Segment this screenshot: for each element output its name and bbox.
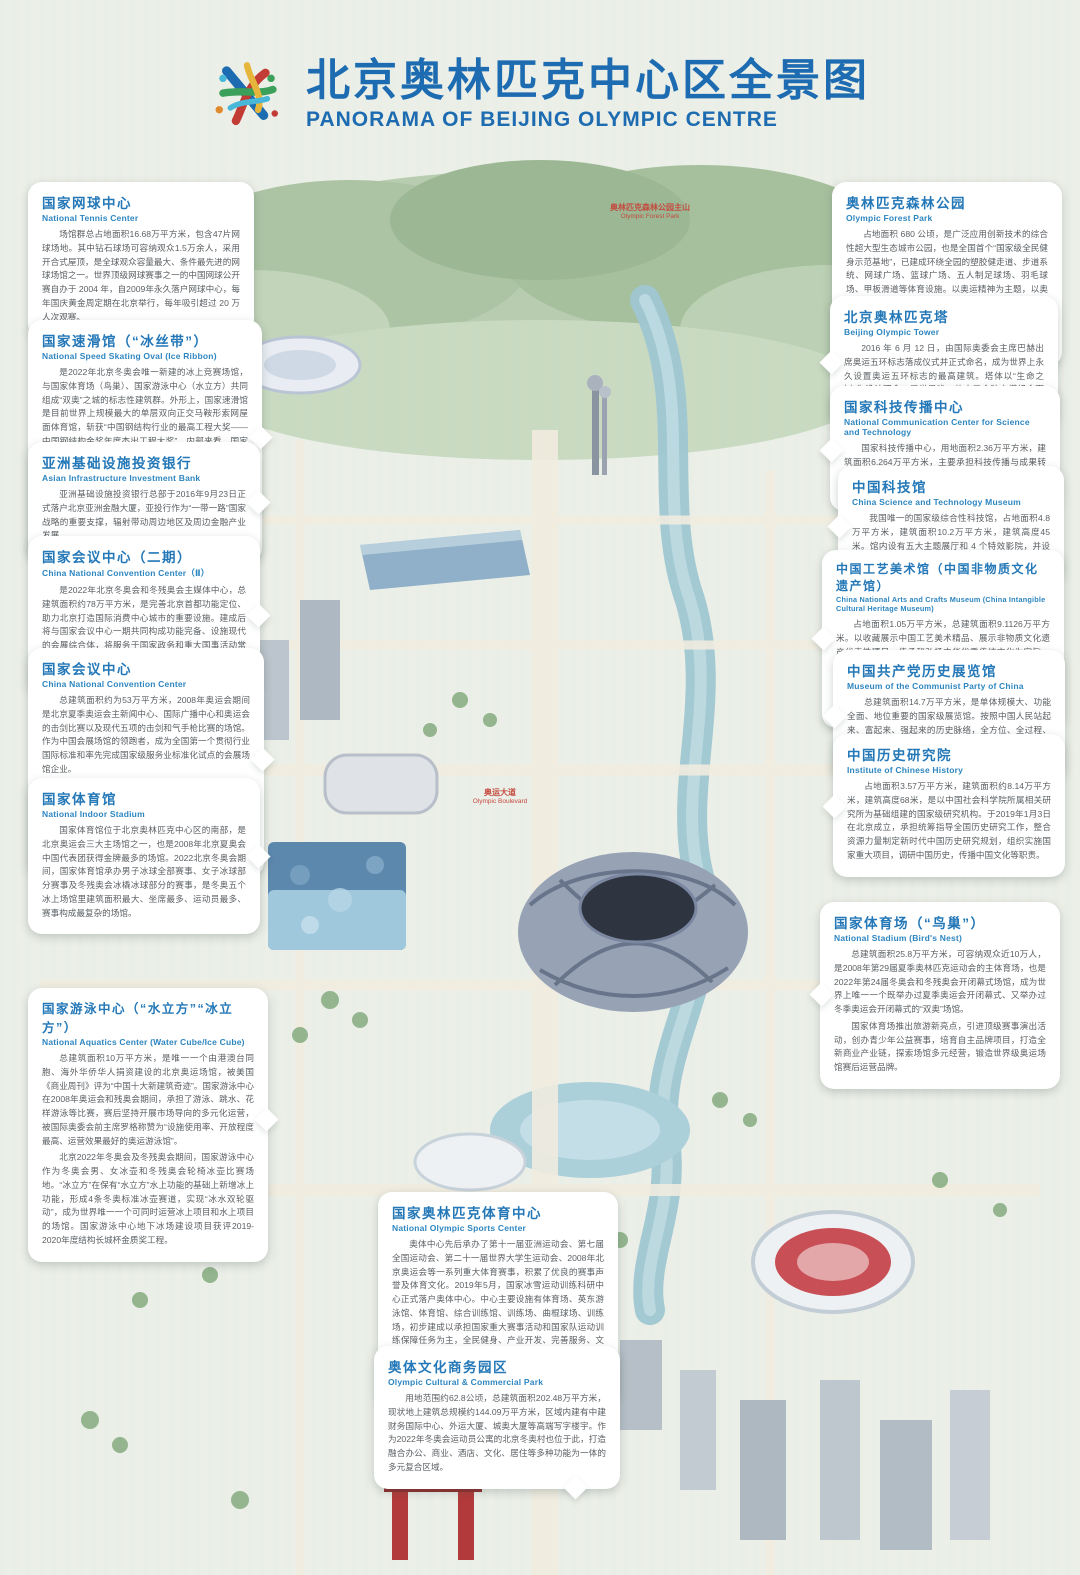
- water-cube-shape: [268, 842, 406, 950]
- callout-title-en: National Speed Skating Oval (Ice Ribbon): [42, 351, 248, 361]
- map-label-zh: 奥运大道: [455, 788, 545, 798]
- callout-title-zh: 国家网球中心: [42, 192, 240, 212]
- callout-title-zh: 奥体文化商务园区: [388, 1356, 606, 1376]
- callout-title-en: China National Convention Center: [42, 679, 250, 689]
- callout-title-en: Olympic Forest Park: [846, 213, 1048, 223]
- callout-title-zh: 国家速滑馆（“冰丝带”）: [42, 330, 248, 350]
- callout-body: 用地范围约62.8公顷，总建筑面积202.48万平方米，现状地上建筑总规模约14…: [388, 1392, 606, 1475]
- indoor-stadium-shape: [325, 755, 437, 813]
- callout-title-en: Institute of Chinese History: [847, 765, 1051, 775]
- callout-title-zh: 中国科技馆: [852, 476, 1050, 496]
- callout-title-en: National Tennis Center: [42, 213, 240, 223]
- callout-olympic-cultural-commercial-park: 奥体文化商务园区 Olympic Cultural & Commercial P…: [374, 1346, 620, 1489]
- callout-title-zh: 亚洲基础设施投资银行: [42, 452, 246, 472]
- callout-title-zh: 北京奥林匹克塔: [844, 306, 1044, 326]
- callout-title-en: China National Convention Center（Ⅱ）: [42, 567, 246, 579]
- callout-title-en: National Stadium (Bird's Nest): [834, 933, 1046, 943]
- callout-body: 北京2022年冬奥会及冬残奥会期间，国家游泳中心作为冬奥会男、女冰壶和冬残奥会轮…: [42, 1151, 254, 1247]
- callout-title-en: National Communication Center for Scienc…: [844, 417, 1046, 437]
- callout-title-en: Museum of the Communist Party of China: [847, 681, 1051, 691]
- callout-body: 总建筑面积10万平方米，是唯一一个由港澳台同胞、海外华侨华人捐资建设的北京奥运场…: [42, 1052, 254, 1148]
- callout-title-zh: 中国工艺美术馆（中国非物质文化遗产馆）: [836, 560, 1050, 594]
- map-label-forest-park: 奥林匹克森林公园主山 Olympic Forest Park: [585, 203, 715, 221]
- callout-national-tennis-center: 国家网球中心 National Tennis Center 场馆群总占地面积16…: [28, 182, 254, 338]
- map-label-olympic-boulevard: 奥运大道 Olympic Boulevard: [455, 788, 545, 806]
- callout-body: 总建筑面积25.8万平方米，可容纳观众近10万人，是2008年第29届夏季奥林匹…: [834, 948, 1046, 1017]
- callout-title-zh: 国家奥林匹克体育中心: [392, 1202, 604, 1222]
- callout-title-en: China National Arts and Crafts Museum (C…: [836, 595, 1050, 613]
- map-label-en: Olympic Forest Park: [585, 213, 715, 221]
- callout-body: 总建筑面积约为53万平方米，2008年奥运会期间是北京夏季奥运会主新闻中心、国际…: [42, 694, 250, 777]
- callout-national-stadium-birds-nest: 国家体育场（“鸟巢”） National Stadium (Bird's Nes…: [820, 902, 1060, 1089]
- callout-title-zh: 国家会议中心: [42, 658, 250, 678]
- map-label-zh: 奥林匹克森林公园主山: [585, 203, 715, 213]
- callout-title-zh: 国家体育馆: [42, 788, 246, 808]
- callout-body: 占地面积3.57万平方米，建筑面积约8.14万平方米，建筑高度68米，是以中国社…: [847, 780, 1051, 863]
- callout-body: 国家体育场推出旅游新亮点，引进顶级赛事演出活动，创办青少年公益赛事，培育自主品牌…: [834, 1020, 1046, 1075]
- page-subtitle: PANORAMA OF BEIJING OLYMPIC CENTRE: [306, 108, 870, 132]
- page-title: 北京奥林匹克中心区全景图: [306, 58, 870, 104]
- callout-body: 国家体育馆位于北京奥林匹克中心区的南部，是北京奥运会三大主场馆之一，也是2008…: [42, 824, 246, 920]
- birds-nest-shape: [518, 852, 748, 1012]
- callout-title-zh: 国家游泳中心（“水立方”“冰立方”）: [42, 998, 254, 1036]
- callout-body: 场馆群总占地面积16.68万平方米，包含47片网球场地。其中钻石球场可容纳观众1…: [42, 228, 240, 324]
- callout-national-indoor-stadium: 国家体育馆 National Indoor Stadium 国家体育馆位于北京奥…: [28, 778, 260, 934]
- olympic-centre-logo-icon: [210, 58, 284, 132]
- callout-title-zh: 中国共产党历史展览馆: [847, 660, 1051, 680]
- callout-title-en: Olympic Cultural & Commercial Park: [388, 1377, 606, 1387]
- dome-venue-shape: [415, 1134, 525, 1190]
- callout-title-zh: 国家会议中心（二期）: [42, 546, 246, 566]
- callout-national-aquatics-center: 国家游泳中心（“水立方”“冰立方”） National Aquatics Cen…: [28, 988, 268, 1262]
- callout-body: 亚洲基础设施投资银行总部于2016年9月23日正式落户北京亚洲金融大厦，亚投行作…: [42, 488, 246, 543]
- callout-title-zh: 中国历史研究院: [847, 744, 1051, 764]
- callout-title-en: National Aquatics Center (Water Cube/Ice…: [42, 1037, 254, 1047]
- callout-title-zh: 国家体育场（“鸟巢”）: [834, 912, 1046, 932]
- callout-title-en: National Indoor Stadium: [42, 809, 246, 819]
- callout-title-zh: 国家科技传播中心: [844, 396, 1046, 416]
- callout-title-zh: 奥林匹克森林公园: [846, 192, 1048, 212]
- callout-title-en: National Olympic Sports Center: [392, 1223, 604, 1233]
- map-label-en: Olympic Boulevard: [455, 798, 545, 806]
- callout-title-en: China Science and Technology Museum: [852, 497, 1050, 507]
- page-header: 北京奥林匹克中心区全景图 PANORAMA OF BEIJING OLYMPIC…: [0, 58, 1080, 132]
- callout-title-en: Asian Infrastructure Investment Bank: [42, 473, 246, 483]
- callout-title-en: Beijing Olympic Tower: [844, 327, 1044, 337]
- callout-institute-of-chinese-history: 中国历史研究院 Institute of Chinese History 占地面…: [833, 734, 1065, 877]
